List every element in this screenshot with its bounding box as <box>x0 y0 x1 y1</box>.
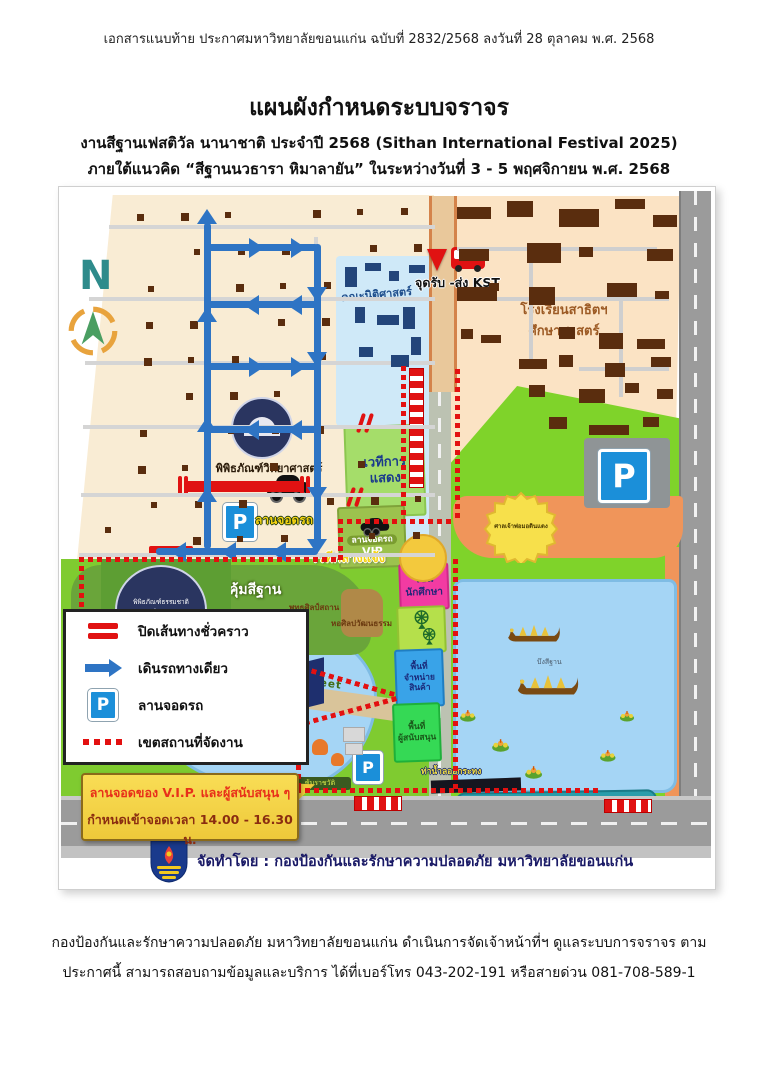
stage-label-1: เวทีการ <box>363 454 406 472</box>
building-block <box>414 244 422 252</box>
one-way-arrowhead <box>291 238 306 258</box>
one-way-arrowhead <box>244 295 259 315</box>
sponsor-zone-label-2: ผู้สนับสนุน <box>398 732 437 744</box>
building-block <box>280 283 286 289</box>
east-road <box>679 191 711 885</box>
krathong-pier-east-label: ท่าน้ำลอยกระทง <box>421 764 481 778</box>
parking-sign-icon: P <box>80 689 126 721</box>
building-block <box>411 337 421 355</box>
building-block <box>457 207 491 219</box>
street-line <box>489 297 669 301</box>
building-block <box>657 389 673 399</box>
building-block <box>193 537 201 545</box>
service-building <box>343 727 365 742</box>
merchandise-zone: พื้นที่จำหน่าย สินค้า <box>394 648 445 708</box>
outdoor-stage-area <box>399 534 447 582</box>
location-pin-icon <box>427 249 447 271</box>
footer-paragraph-line1: กองป้องกันและรักษาความปลอดภัย มหาวิทยาลั… <box>0 932 758 954</box>
krathong-icon <box>524 764 543 778</box>
building-block <box>355 307 365 323</box>
service-building <box>345 743 363 755</box>
building-block <box>195 501 202 508</box>
one-way-arrowhead <box>197 307 217 322</box>
one-way-arrowhead <box>197 487 217 502</box>
stage-label-2: แสดง <box>369 470 401 487</box>
building-block <box>409 265 425 273</box>
building-block <box>188 357 194 363</box>
building-block <box>105 527 111 533</box>
building-block <box>481 335 501 343</box>
building-block <box>370 245 377 252</box>
event-boundary-dotted <box>79 557 339 562</box>
legend-row-boundary: เขตสถานที่จัดงาน <box>66 724 306 760</box>
legend-row-closed: ปิดเส้นทางชั่วคราว <box>66 613 306 649</box>
building-block <box>403 307 415 329</box>
building-block <box>358 461 365 468</box>
merchandise-zone-label-2: สินค้า <box>409 683 431 694</box>
building-block <box>274 391 280 397</box>
traffic-map: P ศาลเจ้าพ่อมอดินแดง คุ้มสีฐาน Creative … <box>58 186 716 890</box>
building-block <box>647 249 673 261</box>
building-block <box>313 210 321 218</box>
satit-school-line1: โรงเรียนสาธิตฯ <box>499 299 629 320</box>
vip-parking-callout: ลานจอดของ V.I.P. และผู้สนับสนุน ๆ กำหนดเ… <box>81 773 299 841</box>
building-block <box>345 267 357 287</box>
building-block <box>270 463 278 471</box>
event-boundary-dotted <box>455 369 460 519</box>
street-line <box>529 247 533 367</box>
sithan-lake-label: บึงสีฐาน <box>537 657 562 668</box>
street-line <box>81 493 435 497</box>
one-way-arrowhead <box>197 209 217 224</box>
ferris-wheel-icon <box>420 626 437 651</box>
building-block <box>459 249 489 261</box>
building-block <box>359 347 373 357</box>
attachment-header: เอกสารแนบท้าย ประกาศมหาวิทยาลัยขอนแก่น ฉ… <box>0 28 758 49</box>
one-way-arrowhead <box>287 295 302 315</box>
pier-east-text: ท่าน้ำลอยกระทง <box>421 767 481 777</box>
building-block <box>643 417 659 427</box>
building-block <box>144 358 152 366</box>
building-block <box>461 329 473 339</box>
building-block <box>239 500 247 508</box>
krathong-icon <box>491 737 510 751</box>
legend-label-boundary: เขตสถานที่จัดงาน <box>138 731 243 753</box>
building-block <box>389 271 399 281</box>
legend-row-oneway: เดินรถทางเดียว <box>66 650 306 686</box>
orange-tree-icon <box>331 753 344 766</box>
building-block <box>637 339 665 349</box>
building-block <box>615 199 645 209</box>
art-culture-hall-label: หอศิลปวัฒนธรรม <box>331 617 392 630</box>
building-block <box>225 212 231 218</box>
parking-letter: P <box>233 510 248 534</box>
event-boundary-dotted <box>401 366 406 520</box>
callout-line2: กำหนดเข้าจอดเวลา 14.00 - 16.30 น. <box>83 810 297 850</box>
building-block <box>322 318 330 326</box>
building-block <box>137 214 144 221</box>
building-block <box>549 417 567 429</box>
one-way-arrowhead <box>244 420 259 440</box>
shrine-label: ศาลเจ้าพ่อมอดินแดง <box>489 521 553 531</box>
building-block <box>357 209 363 215</box>
building-block <box>369 533 375 539</box>
ferris-wheel-zone <box>396 605 447 654</box>
building-block <box>371 497 379 505</box>
callout-line1: ลานจอดของ V.I.P. และผู้สนับสนุน ๆ <box>83 783 297 803</box>
one-way-arrow-icon <box>80 659 126 677</box>
legend-row-parking: P ลานจอดรถ <box>66 687 306 723</box>
one-way-arrowhead <box>307 487 327 502</box>
building-block <box>529 287 555 305</box>
barrier-striped <box>604 799 652 813</box>
building-block <box>655 291 669 299</box>
one-way-arrowhead <box>249 238 264 258</box>
building-block <box>507 201 533 217</box>
footer-paragraph-line2: ประกาศนี้ สามารถสอบถามข้อมูลและบริการ ได… <box>0 962 758 984</box>
parking-sign-large: P <box>598 449 650 503</box>
building-block <box>489 283 499 291</box>
building-block <box>151 502 157 508</box>
building-block <box>327 498 334 505</box>
building-block <box>653 215 677 227</box>
building-block <box>519 359 547 369</box>
road-dash-line <box>694 191 697 885</box>
building-block <box>605 363 625 377</box>
legend-label-parking: ลานจอดรถ <box>138 694 203 716</box>
merchandise-zone-label-1: พื้นที่จำหน่าย <box>396 661 442 684</box>
building-block <box>401 208 408 215</box>
legend-label-oneway: เดินรถทางเดียว <box>138 657 228 679</box>
one-way-arrowhead <box>197 417 217 432</box>
building-block <box>190 321 198 329</box>
shrine-starburst: ศาลเจ้าพ่อมอดินแดง <box>483 491 559 563</box>
parking-letter: P <box>612 457 635 495</box>
parking-lot-text: ลานจอดรถ <box>255 513 313 527</box>
one-way-arrowhead <box>287 420 302 440</box>
credit-line: จัดทำโดย : กองป้องกันและรักษาความปลอดภัย… <box>197 850 697 873</box>
sponsor-zone: พื้นที่ ผู้สนับสนุน <box>392 702 442 763</box>
orange-tree-icon <box>312 739 328 755</box>
event-boundary-dotted <box>338 519 343 561</box>
event-boundary-dotted <box>338 519 454 524</box>
building-block <box>607 283 637 297</box>
map-canvas: P ศาลเจ้าพ่อมอดินแดง คุ้มสีฐาน Creative … <box>59 187 715 889</box>
closed-route-icon <box>80 623 126 639</box>
krathong-icon <box>619 707 635 719</box>
building-block <box>589 425 629 435</box>
event-boundary-icon <box>80 739 126 745</box>
event-boundary-dotted <box>296 788 601 793</box>
north-letter: N <box>79 253 112 299</box>
subtitle-concept-dates: ภายใต้แนวคิด “สีฐานนวธารา หิมาลายัน” ในร… <box>0 157 758 181</box>
barrier-striped <box>354 796 402 811</box>
building-block <box>237 536 243 542</box>
building-block <box>232 356 239 363</box>
royal-barge-icon <box>515 673 581 705</box>
building-block <box>181 213 189 221</box>
one-way-arrowhead <box>307 287 327 302</box>
parking-sign-south: P <box>353 751 383 784</box>
building-block <box>559 355 573 367</box>
building-block <box>138 466 146 474</box>
krathong-icon <box>599 747 617 760</box>
building-block <box>559 209 599 227</box>
building-block <box>148 286 154 292</box>
subtitle-festival: งานสีฐานเฟสติวัล นานาชาติ ประจำปี 2568 (… <box>0 131 758 155</box>
building-block <box>186 393 193 400</box>
map-legend: ปิดเส้นทางชั่วคราว เดินรถทางเดียว P ลานจ… <box>63 609 309 765</box>
legend-label-closed: ปิดเส้นทางชั่วคราว <box>138 620 249 642</box>
building-block <box>391 355 409 367</box>
parking-lot-label: ลานจอดรถ <box>255 511 313 530</box>
document-page: เอกสารแนบท้าย ประกาศมหาวิทยาลัยขอนแก่น ฉ… <box>0 0 758 1074</box>
one-way-arrowhead <box>307 539 327 554</box>
building-block <box>579 247 593 257</box>
building-block <box>529 385 545 397</box>
building-block <box>236 284 244 292</box>
khum-sithan-label: คุ้มสีฐาน <box>229 579 281 601</box>
building-block <box>413 532 420 539</box>
building-block <box>365 263 381 271</box>
building-block <box>527 243 561 263</box>
building-block <box>230 392 238 400</box>
event-boundary-dotted <box>453 559 458 791</box>
one-way-arrowhead <box>307 352 327 367</box>
student-zone-label-2: นักศึกษา <box>405 586 443 600</box>
building-block <box>651 357 671 367</box>
compass-icon <box>65 303 121 363</box>
one-way-arrowhead <box>249 357 264 377</box>
one-way-arrowhead <box>291 357 306 377</box>
building-block <box>599 333 623 349</box>
sponsor-zone-label-1: พื้นที่ <box>408 722 425 733</box>
building-block <box>140 430 147 437</box>
building-block <box>182 465 188 471</box>
royal-barge-icon <box>506 623 562 651</box>
building-block <box>146 322 153 329</box>
building-block <box>559 327 575 339</box>
building-block <box>278 319 285 326</box>
street-line <box>109 225 435 229</box>
building-block <box>377 315 399 325</box>
krathong-icon <box>459 707 477 720</box>
building-block <box>415 496 421 502</box>
building-block <box>194 249 200 255</box>
parking-letter: P <box>362 758 374 777</box>
page-title: แผนผังกำหนดระบบจราจร <box>0 90 758 126</box>
building-block <box>625 383 639 393</box>
building-block <box>579 389 605 403</box>
